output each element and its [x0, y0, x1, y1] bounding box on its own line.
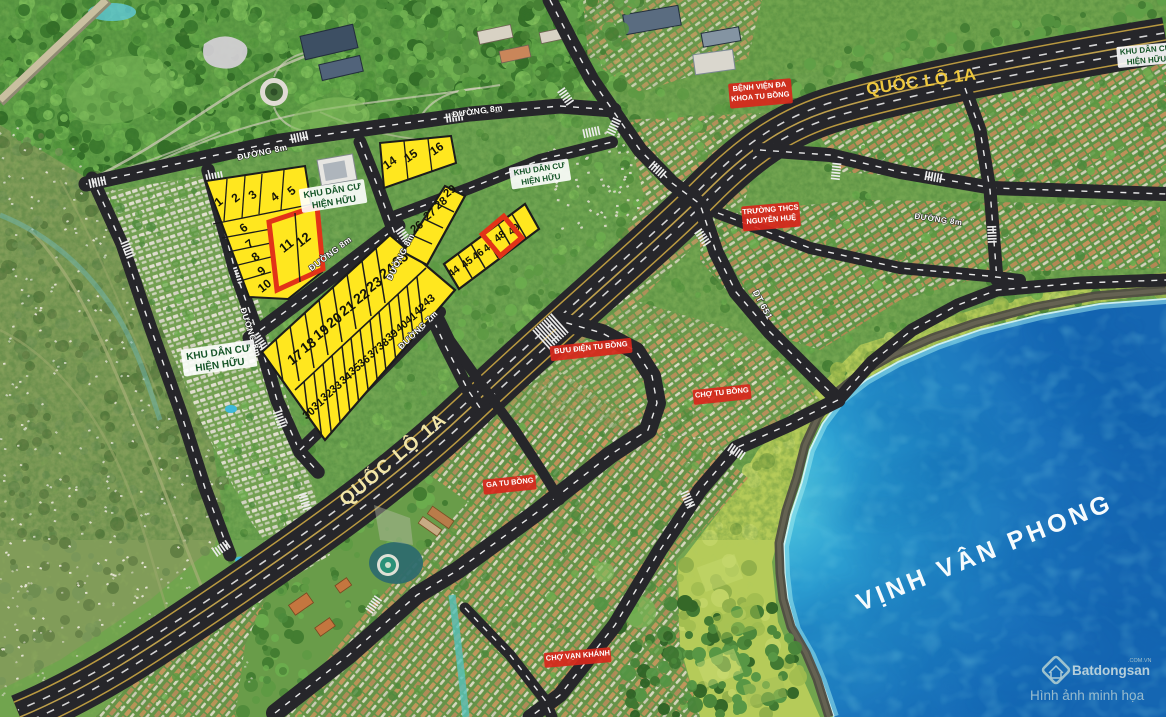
svg-text:Hình ảnh minh họa: Hình ảnh minh họa: [1030, 688, 1145, 703]
svg-text:.COM.VN: .COM.VN: [1128, 658, 1152, 664]
svg-text:Batdongsan: Batdongsan: [1072, 663, 1150, 678]
